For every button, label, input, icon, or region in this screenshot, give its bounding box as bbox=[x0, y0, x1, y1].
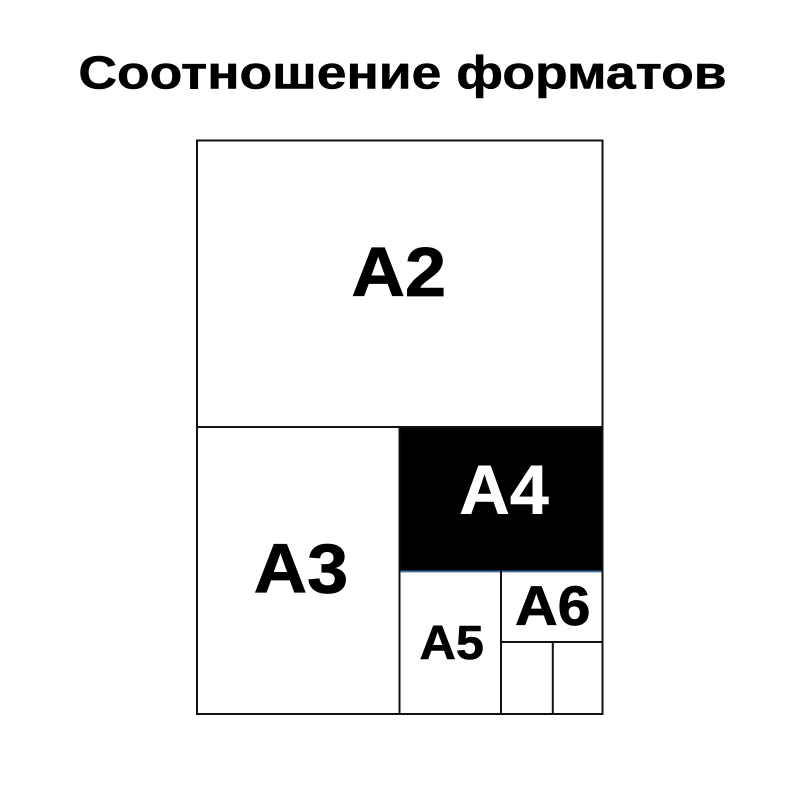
svg-text:Соотношение форматов: Соотношение форматов bbox=[78, 47, 726, 99]
svg-text:A5: A5 bbox=[420, 616, 484, 670]
svg-text:A4: A4 bbox=[459, 451, 549, 529]
svg-text:A6: A6 bbox=[515, 575, 591, 637]
svg-text:A2: A2 bbox=[351, 234, 446, 312]
svg-text:A3: A3 bbox=[254, 530, 348, 608]
